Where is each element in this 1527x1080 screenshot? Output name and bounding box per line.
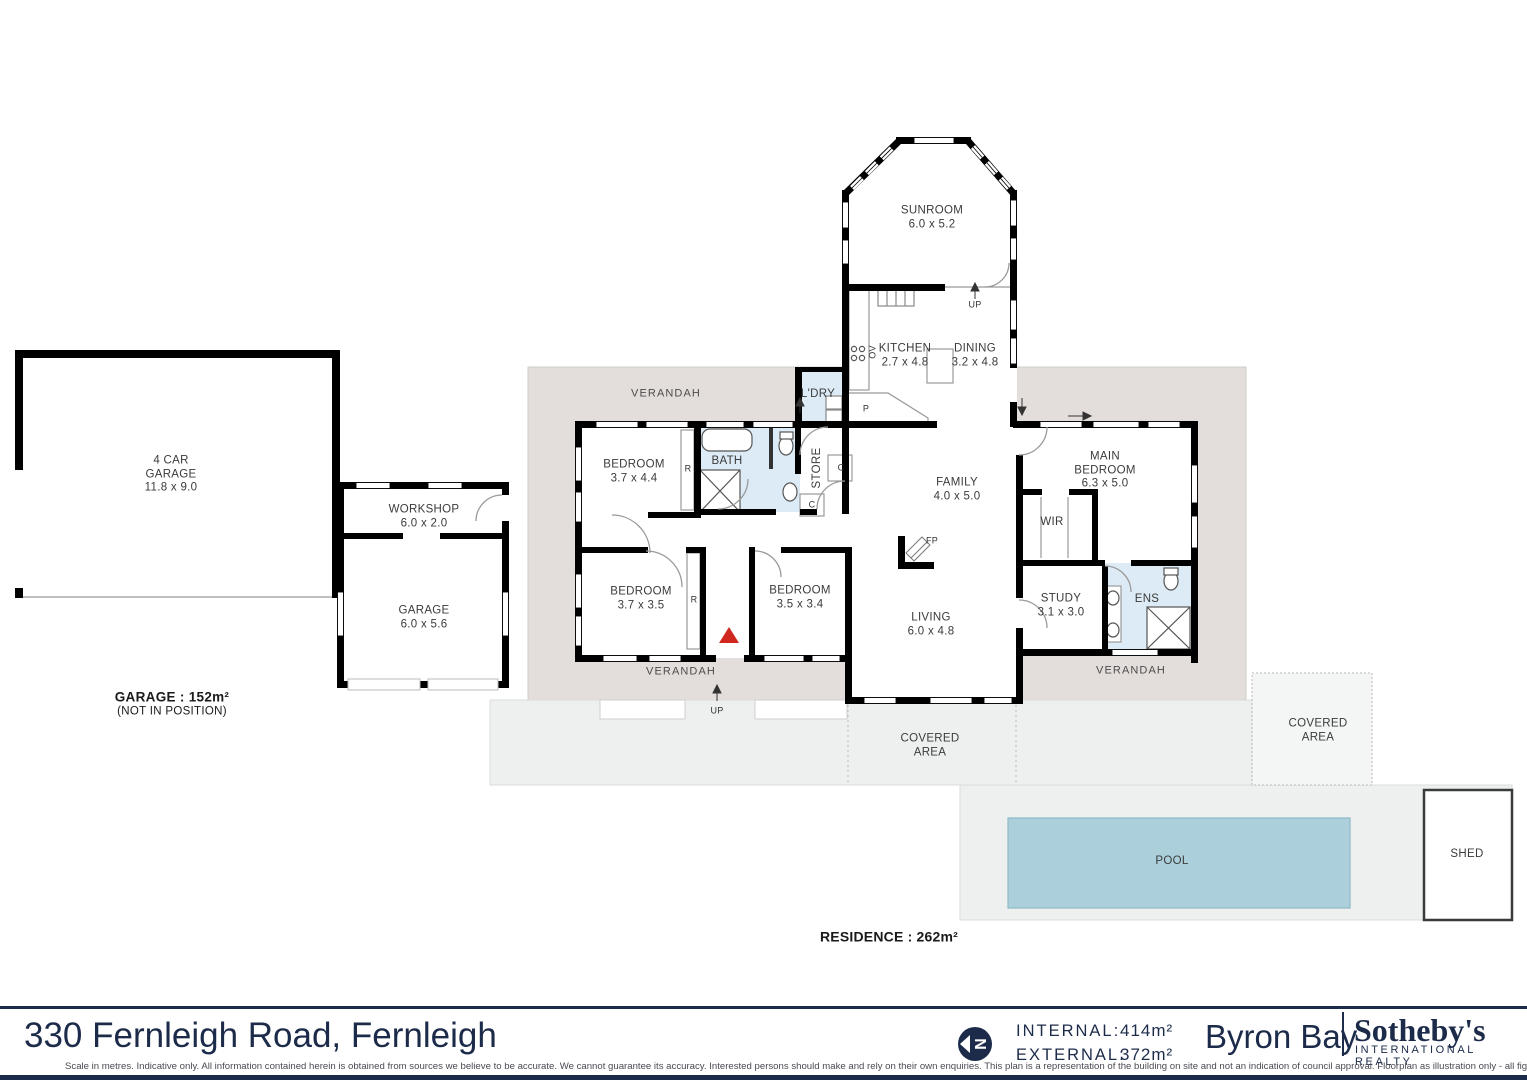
robe1-label: R	[685, 464, 692, 475]
room-label-sunroom: SUNROOM6.0 x 5.2	[901, 204, 963, 231]
internal-area-value: 414m²	[1120, 1021, 1173, 1041]
room-label-bath: BATH	[711, 455, 742, 469]
toilet-wc	[783, 483, 797, 501]
room-label-laundry: L'DRY	[801, 388, 835, 402]
room-label-garage-4car: 4 CARGARAGE 11.8 x 9.0	[145, 455, 198, 496]
room-label-store: STORE	[811, 448, 825, 489]
garage-note: GARAGE : 152m² (NOT IN POSITION)	[115, 689, 229, 718]
room-label-family: FAMILY4.0 x 5.0	[934, 476, 981, 503]
compass-icon: N	[958, 1027, 992, 1061]
compass-letter: N	[971, 1038, 988, 1050]
room-label-kitchen: KITCHEN2.7 x 4.8	[879, 342, 932, 369]
cupboard2-label: C	[809, 500, 816, 511]
room-label-bedroom2: BEDROOM3.7 x 3.5	[610, 585, 672, 612]
room-label-pool: POOL	[1155, 855, 1188, 869]
room-label-ens: ENS	[1135, 593, 1160, 607]
covered-area-center-label: COVEREDAREA	[901, 732, 960, 759]
up-label-stairs: UP	[969, 300, 982, 311]
verandah-label-top: VERANDAH	[631, 388, 701, 401]
room-label-main-bedroom: MAINBEDROOM 6.3 x 5.0	[1074, 451, 1136, 492]
fireplace-label: FP	[926, 536, 938, 547]
residence-note: RESIDENCE : 262m²	[820, 929, 958, 946]
pantry-label: P	[863, 404, 869, 415]
room-label-workshop: WORKSHOP6.0 x 2.0	[389, 503, 460, 530]
internal-area-row: INTERNAL: 414m²	[1016, 1021, 1173, 1045]
page-title-address: 330 Fernleigh Road, Fernleigh	[24, 1016, 497, 1056]
disclaimer-text: Scale in metres. Indicative only. All in…	[65, 1061, 1477, 1072]
room-label-garage-small: GARAGE6.0 x 5.6	[398, 604, 449, 631]
oven-label: OV	[868, 345, 879, 358]
robe2-label: R	[691, 595, 698, 606]
toilet-bath	[779, 437, 793, 455]
room-label-living: LIVING6.0 x 4.8	[908, 611, 955, 638]
room-label-dining: DINING3.2 x 4.8	[952, 342, 999, 369]
footer-bottom-rule	[0, 1075, 1527, 1080]
verandah-label-bottom-left: VERANDAH	[646, 666, 716, 679]
room-label-study: STUDY3.1 x 3.0	[1038, 592, 1085, 619]
floorplan-drawing: N	[0, 0, 1527, 1080]
room-label-bedroom3: BEDROOM3.5 x 3.4	[769, 584, 831, 611]
verandah-label-bottom-right: VERANDAH	[1096, 665, 1166, 678]
bathtub	[702, 429, 752, 451]
cupboard1-label: C	[838, 463, 845, 474]
office-name: Byron Bay	[1205, 1018, 1357, 1056]
covered-area-right-label: COVEREDAREA	[1289, 717, 1348, 744]
internal-area-label: INTERNAL:	[1016, 1022, 1120, 1041]
up-label-verandah: UP	[711, 706, 724, 717]
room-label-bedroom1: BEDROOM3.7 x 4.4	[603, 458, 665, 485]
room-label-wir: WIR	[1040, 516, 1063, 530]
room-label-shed: SHED	[1450, 848, 1483, 862]
floorplan-page: N SUNROOM6.0 x 5.2 KITCHEN2.7 x 4.8 DINI…	[0, 0, 1527, 1080]
footer-top-rule	[0, 1006, 1527, 1009]
